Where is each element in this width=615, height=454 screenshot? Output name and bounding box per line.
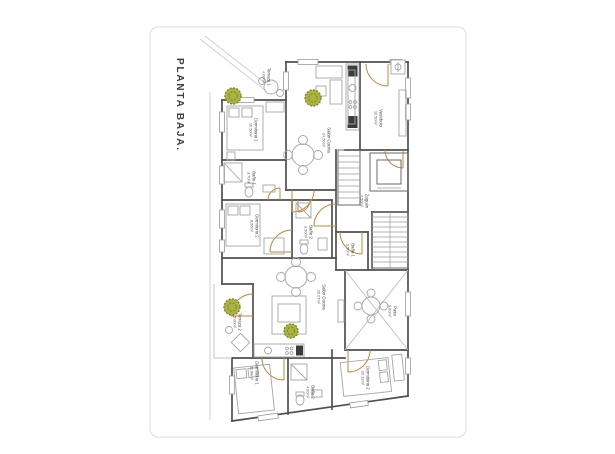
elevator [370, 153, 408, 191]
room-area: 3.70m² [246, 172, 251, 185]
dining-table-top [284, 136, 323, 175]
floor-plan-page: PLANTA BAJA. [0, 0, 615, 454]
room-label-dormitorio2-bottom: Dormitorio 2 10.12m² [360, 366, 370, 390]
window [298, 60, 318, 65]
patio-table [362, 297, 380, 315]
room-label-bano1-bottom: Baño 1 3.50m² [345, 243, 355, 257]
door-dorm2-top [270, 230, 292, 252]
room-label-bano2-bottom: Baño 2 4.00m² [305, 385, 315, 399]
window [258, 413, 279, 421]
room-area: 7.50m² [359, 195, 364, 208]
window [406, 358, 411, 374]
tree-icon [305, 90, 321, 106]
room-area: 10.50m² [248, 123, 253, 138]
room-area: 11.88m² [249, 366, 254, 381]
room-area: 4.00m² [261, 71, 266, 84]
room-area: 10.50m² [373, 111, 378, 126]
utility-box-icon [391, 60, 405, 74]
tree-icon [225, 88, 241, 104]
room-area: 8.50m² [249, 220, 254, 233]
room-label-terraza2: Terraza 2 5.00m² [232, 313, 242, 332]
window [350, 400, 369, 407]
stairs-lower [372, 212, 408, 268]
room-area: 9.00m² [387, 305, 392, 318]
room-label-bano2-top: Baño 2 3.50m² [303, 225, 313, 239]
room-area: 10.12m² [360, 371, 365, 386]
room-label-dormitorio1-bottom: Dormitorio 1 11.88m² [249, 361, 259, 385]
room-label-bano1-top: Baño 1 3.70m² [246, 171, 256, 185]
door-bath1-top [268, 188, 280, 200]
window [284, 72, 289, 90]
stairs-upper [338, 150, 360, 205]
room-label-salon-top: Salón Cocina 24.50m² [321, 127, 331, 153]
window [220, 240, 225, 252]
patio [345, 270, 408, 350]
window [220, 112, 225, 132]
tree-icon [284, 324, 298, 338]
room-area: 4.00m² [305, 386, 310, 399]
dining-table-bottom [277, 258, 316, 297]
kitchen-bottom [254, 344, 304, 357]
terrace-2-outline [214, 284, 232, 358]
room-area: 24.50m² [321, 133, 326, 148]
wardrobe-dorm1-top [266, 102, 284, 112]
bath2-bottom-fixtures [291, 364, 322, 405]
room-area: 5.00m² [232, 316, 237, 329]
room-label-zaguan: Zaguán 7.50m² [359, 194, 369, 209]
room-label-dormitorio1-top: Dormitorio 1 10.50m² [248, 118, 258, 142]
window [406, 292, 411, 316]
door-dorm1-bottom [262, 358, 284, 380]
plan-title: PLANTA BAJA. [174, 58, 185, 152]
window [230, 376, 235, 394]
door-entrance [366, 64, 388, 86]
room-label-salon-bottom: Salón Cocina 26.07m² [316, 284, 326, 310]
room-area: 3.50m² [303, 226, 308, 239]
window [220, 210, 225, 228]
floor-plan-drawing: PLANTA BAJA. [0, 0, 615, 454]
sofa-bottom [272, 296, 344, 334]
bed-dorm2-bottom [340, 354, 405, 396]
room-label-vestibulo: Vestíbulo 10.50m² [373, 109, 383, 127]
room-area: 26.07m² [316, 290, 321, 305]
room-label-dormitorio2-top: Dormitorio 2 8.50m² [249, 214, 259, 238]
room-area: 3.50m² [345, 244, 350, 257]
room-label-terraza1: Terraza 1 4.00m² [261, 68, 271, 87]
room-label-patio: Patio 9.00m² [387, 305, 397, 318]
